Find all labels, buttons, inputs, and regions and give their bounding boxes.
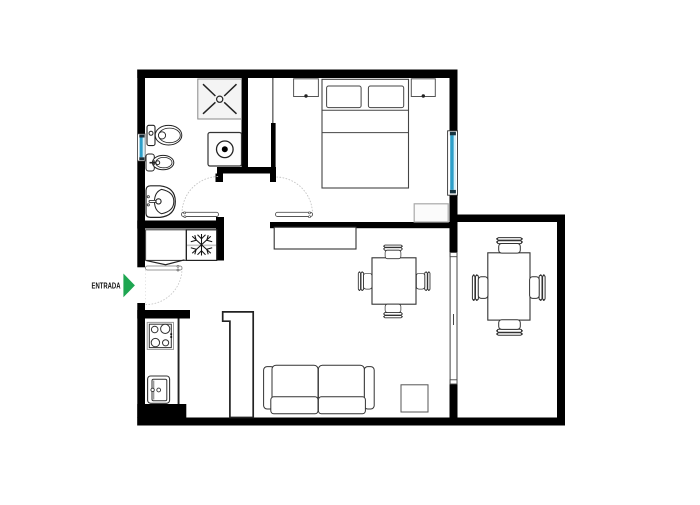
svg-text:ENTRADA: ENTRADA (92, 280, 121, 290)
